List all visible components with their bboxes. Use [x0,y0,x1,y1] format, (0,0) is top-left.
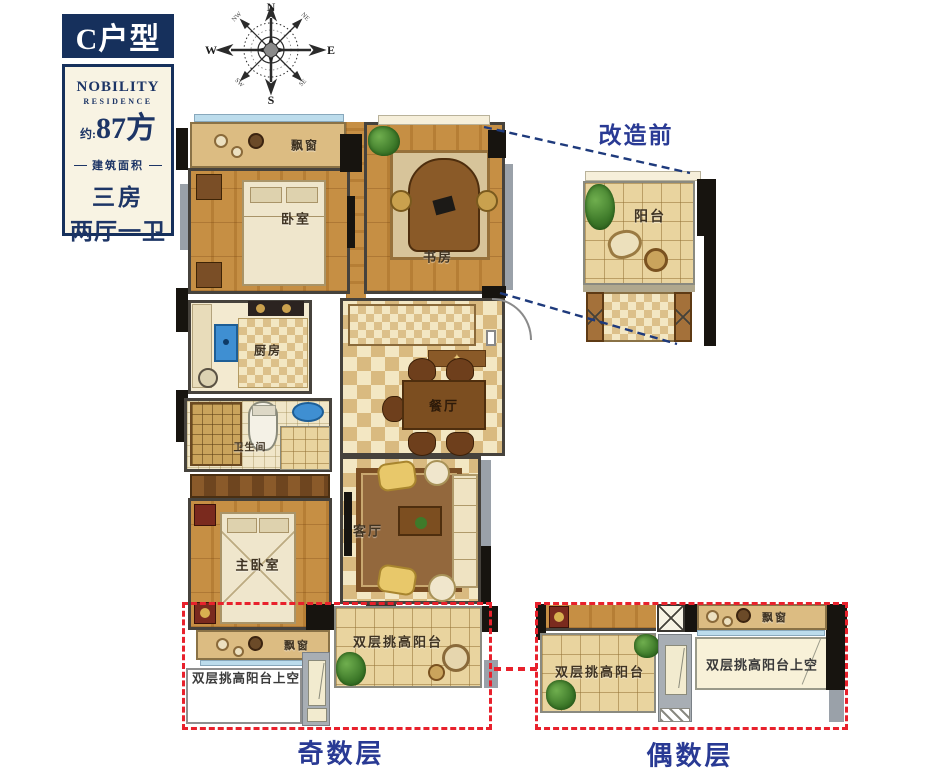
bathroom-label: 卫生间 [234,439,267,454]
before-plant [585,184,615,230]
layout-line2: 两厅一卫 [65,212,171,246]
bedroom-bed [242,180,326,286]
coffee-table [398,506,442,536]
window-wall [180,184,188,250]
dining-chair [446,432,474,456]
bedroom-nightstand [196,174,222,200]
study-desk [408,158,480,252]
wall [488,130,506,158]
before-table [644,248,668,272]
compass-w: W [205,43,217,57]
decor-plate [214,134,228,148]
shower-area [280,426,330,470]
area-value: 87方 [96,112,156,145]
before-sill [583,285,695,292]
odd-floor-outline [182,602,492,730]
bedroom-nightstand [196,262,222,288]
window-wall [481,460,491,546]
wall [481,546,491,604]
unit-type-text: C户型 [76,14,161,58]
living-label: 客厅 [353,521,383,540]
window-wall [505,164,513,290]
before-balcony-label: 阳台 [634,206,666,226]
master-wardrobe [190,474,330,498]
dining-chair [446,358,474,382]
area-line: 约:87方 [65,114,171,149]
unit-type-badge: C户型 [62,14,174,58]
entry-door-arc [492,298,532,340]
master-bedroom-label: 主卧室 [235,555,280,574]
wall [176,288,188,332]
wall [176,128,188,170]
caption-line-left [74,165,87,166]
kitchen-label: 厨房 [254,342,282,359]
wall [697,179,716,236]
dining-chair [408,432,436,456]
dining-chair [382,396,404,422]
brand-name: NOBILITY [65,79,171,96]
side-table [424,460,450,486]
entry-hall-tile [348,304,476,346]
armchair [376,563,418,597]
decor-plate [231,146,243,158]
before-bay-end [586,292,604,342]
side-table [428,574,456,602]
study-chair [390,190,412,212]
area-caption-row: 建筑面积 [65,157,171,173]
caption-line-right [149,165,162,166]
kitchen-stove [248,301,304,316]
wall [340,134,362,172]
even-floor-outline [535,602,848,730]
compass-s: S [268,93,275,106]
compass-e: E [327,43,335,57]
decor-plate [248,133,264,149]
dining-chair [408,358,436,382]
bay-window-top-label: 飘窗 [291,137,319,154]
floorplan-page: C户型 NOBILITY RESIDENCE 约:87方 建筑面积 三房 两厅一… [0,0,943,768]
bedroom-window-line [194,114,344,122]
wall [704,236,716,346]
layout-line1: 三房 [65,178,171,212]
compass-rose: N S E W NW NE SW SE [205,0,337,106]
bedroom-label: 卧室 [281,209,311,228]
living-tv [344,492,352,556]
compass-n: N [267,0,276,14]
area-prefix: 约: [80,127,96,141]
brand-subtitle: RESIDENCE [65,97,171,106]
armchair [376,459,418,492]
study-window [378,115,490,125]
odd-floor-caption: 奇数层 [297,734,384,768]
wall [482,286,506,298]
even-floor-caption: 偶数层 [646,736,733,768]
bathroom-cabinet [190,402,242,466]
bedroom-tv-console [347,196,355,248]
master-nightstand [194,504,216,526]
area-caption: 建筑面积 [92,157,144,173]
bathroom-sink [292,402,324,422]
kitchen-washer [198,368,218,388]
info-panel: NOBILITY RESIDENCE 约:87方 建筑面积 三房 两厅一卫 [62,64,174,236]
dining-label: 餐厅 [429,396,459,415]
before-bay-end [674,292,692,342]
before-title: 改造前 [599,116,674,150]
sofa [452,474,478,588]
study-plant [368,126,400,156]
study-chair [476,190,498,212]
study-label: 书房 [423,247,453,266]
entry-door-leaf [486,330,496,346]
before-window [585,171,701,181]
bay-window-top [190,122,346,168]
kitchen-sink [214,324,238,362]
